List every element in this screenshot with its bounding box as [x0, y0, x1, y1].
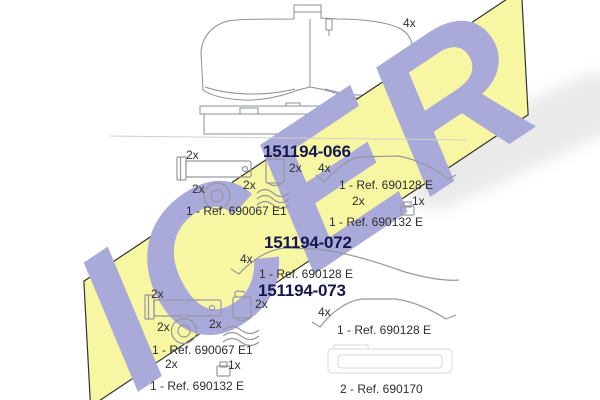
kit073-title: 151194-073	[258, 281, 346, 301]
kit066-bolts-qty: 2x	[352, 194, 365, 208]
kit066-bushing-qty: 2x	[289, 161, 302, 175]
kit073-cap-ref: 1 - Ref. 690132 E	[150, 379, 244, 393]
parts-catalog-image: ICER	[0, 0, 600, 400]
kit072-wire-ref: 1 - Ref. 690128 E	[259, 267, 353, 281]
kit066-spring-qty: 2x	[243, 178, 256, 192]
kit066-cap-ref: 1 - Ref. 690132 E	[329, 215, 423, 229]
top-view-qty-label: 4x	[403, 16, 416, 30]
kit073-wire-qty: 4x	[318, 305, 331, 319]
kit073-spring-qty: 2x	[209, 317, 222, 331]
kit073-bushing-qty: 2x	[255, 297, 268, 311]
divider-line	[110, 136, 467, 140]
kit072-title: 151194-072	[264, 233, 352, 253]
kit073-bushing-drawing	[233, 291, 251, 321]
kit073-wire-ref: 1 - Ref. 690128 E	[337, 323, 431, 337]
kit073-cap-qty: 1x	[228, 358, 241, 372]
kit-part-drawings	[0, 0, 600, 400]
kit073-pin-qty: 2x	[151, 287, 164, 301]
kit066-title: 151194-066	[263, 142, 351, 162]
kit066-wire-qty: 4x	[318, 161, 331, 175]
kit073-washer-qty: 2x	[157, 320, 170, 334]
kit073-shim-plate-drawing	[328, 345, 452, 373]
kit073-hardware-ref: 1 - Ref. 690067 E1	[152, 343, 253, 357]
kit072-wire-qty: 4x	[240, 252, 253, 266]
kit073-bolts-qty: 2x	[165, 357, 178, 371]
kit073-shim-ref: 2 - Ref. 690170	[340, 382, 423, 396]
kit066-washer-qty: 2x	[192, 182, 205, 196]
kit073-washer-drawing	[172, 319, 197, 344]
kit066-pin-qty: 2x	[186, 148, 199, 162]
kit066-wire-ref: 1 - Ref. 690128 E	[339, 178, 433, 192]
kit066-cap-qty: 1x	[412, 194, 425, 208]
kit066-hardware-ref: 1 - Ref. 690067 E1	[186, 204, 287, 218]
